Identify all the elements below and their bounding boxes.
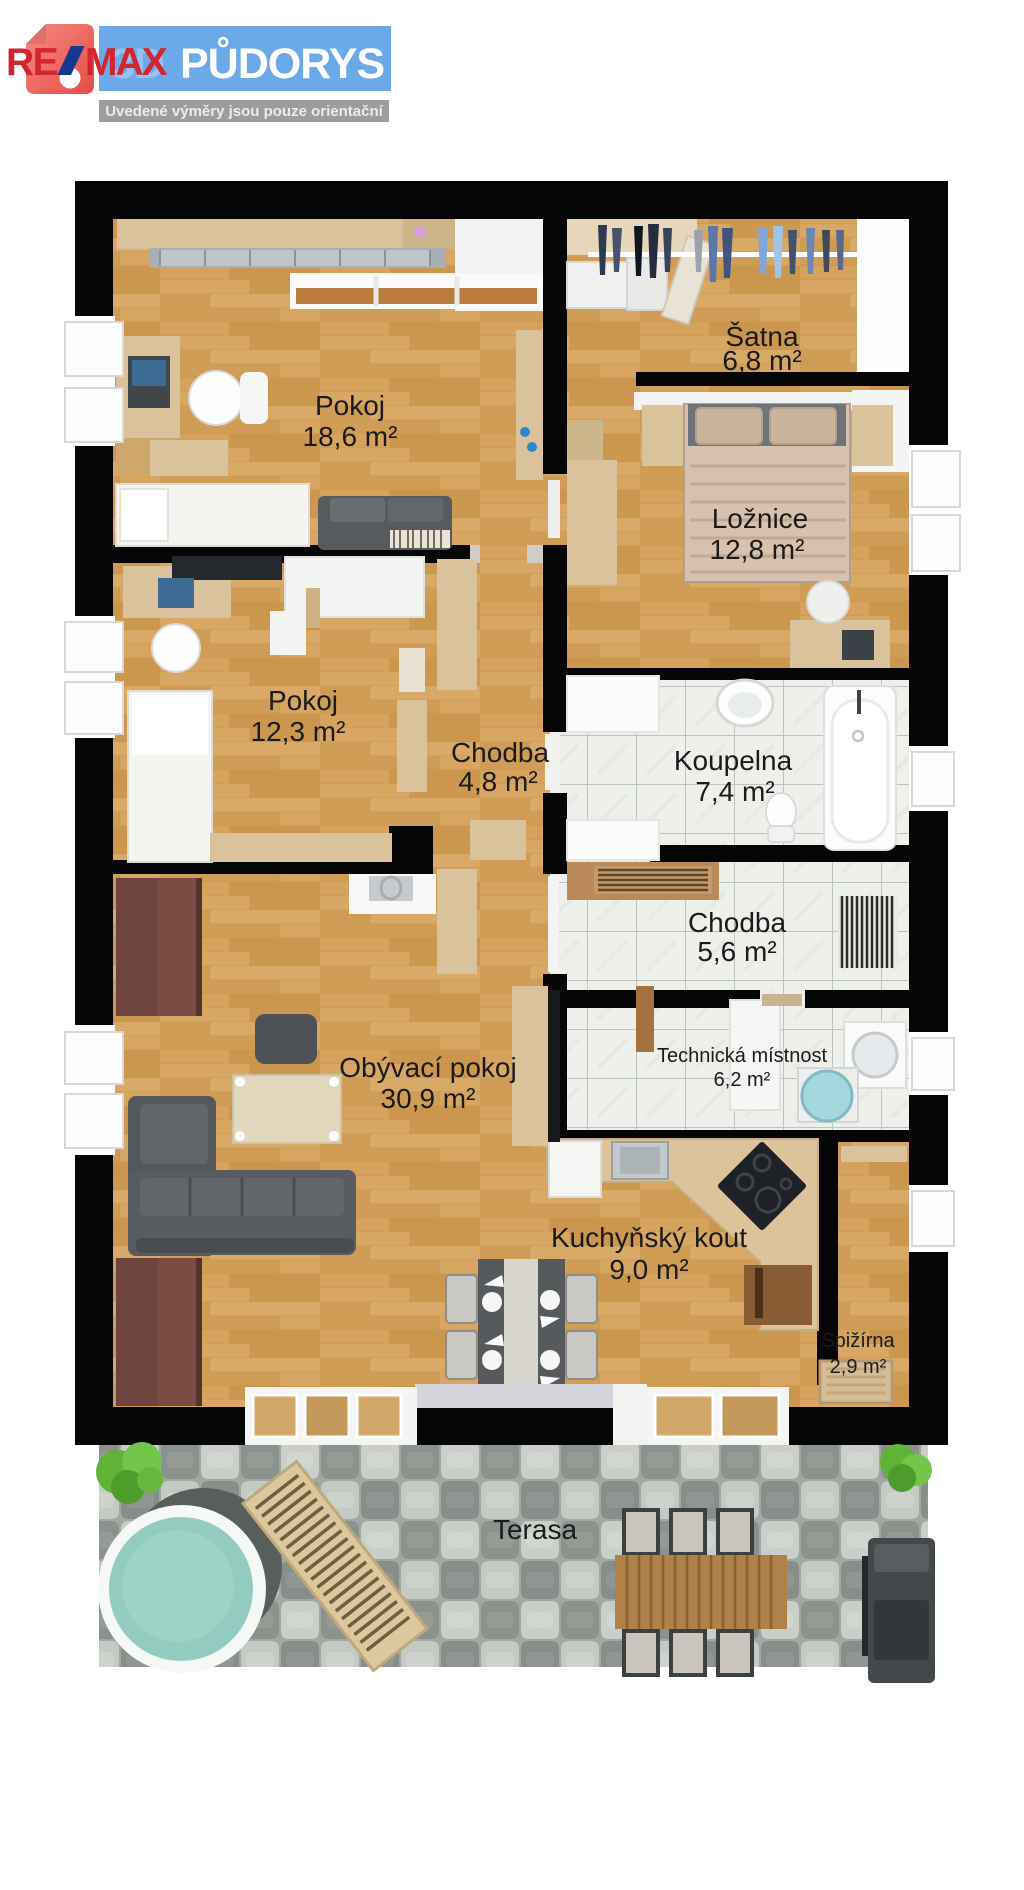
svg-text:Chodba: Chodba xyxy=(688,907,787,938)
svg-text:Pokoj: Pokoj xyxy=(315,390,385,421)
svg-text:Koupelna: Koupelna xyxy=(674,745,793,776)
svg-text:12,8 m²: 12,8 m² xyxy=(710,534,805,565)
svg-text:5,6 m²: 5,6 m² xyxy=(697,936,776,967)
svg-text:Pokoj: Pokoj xyxy=(268,685,338,716)
svg-text:12,3 m²: 12,3 m² xyxy=(251,716,346,747)
svg-text:2,9 m²: 2,9 m² xyxy=(830,1356,887,1378)
svg-text:RE: RE xyxy=(6,41,58,84)
svg-text:MAX: MAX xyxy=(85,41,168,84)
svg-text:7,4 m²: 7,4 m² xyxy=(695,776,774,807)
svg-text:Technická místnost: Technická místnost xyxy=(657,1045,828,1067)
svg-text:Spižírna: Spižírna xyxy=(821,1330,895,1352)
svg-text:6,2 m²: 6,2 m² xyxy=(714,1069,771,1091)
svg-text:Obývací pokoj: Obývací pokoj xyxy=(339,1052,516,1083)
svg-text:4,8 m²: 4,8 m² xyxy=(458,766,537,797)
svg-text:6,8 m²: 6,8 m² xyxy=(722,345,801,376)
svg-text:Uvedené výměry jsou pouze orie: Uvedené výměry jsou pouze orientační xyxy=(105,103,383,120)
svg-text:30,9 m²: 30,9 m² xyxy=(381,1083,476,1114)
svg-text:Terasa: Terasa xyxy=(493,1514,577,1545)
svg-text:9,0 m²: 9,0 m² xyxy=(609,1254,688,1285)
svg-text:Chodba: Chodba xyxy=(451,737,550,768)
svg-text:PŮDORYS: PŮDORYS xyxy=(180,36,384,88)
svg-text:18,6 m²: 18,6 m² xyxy=(303,421,398,452)
svg-text:Ložnice: Ložnice xyxy=(712,503,809,534)
svg-text:Kuchyňský kout: Kuchyňský kout xyxy=(551,1222,747,1253)
